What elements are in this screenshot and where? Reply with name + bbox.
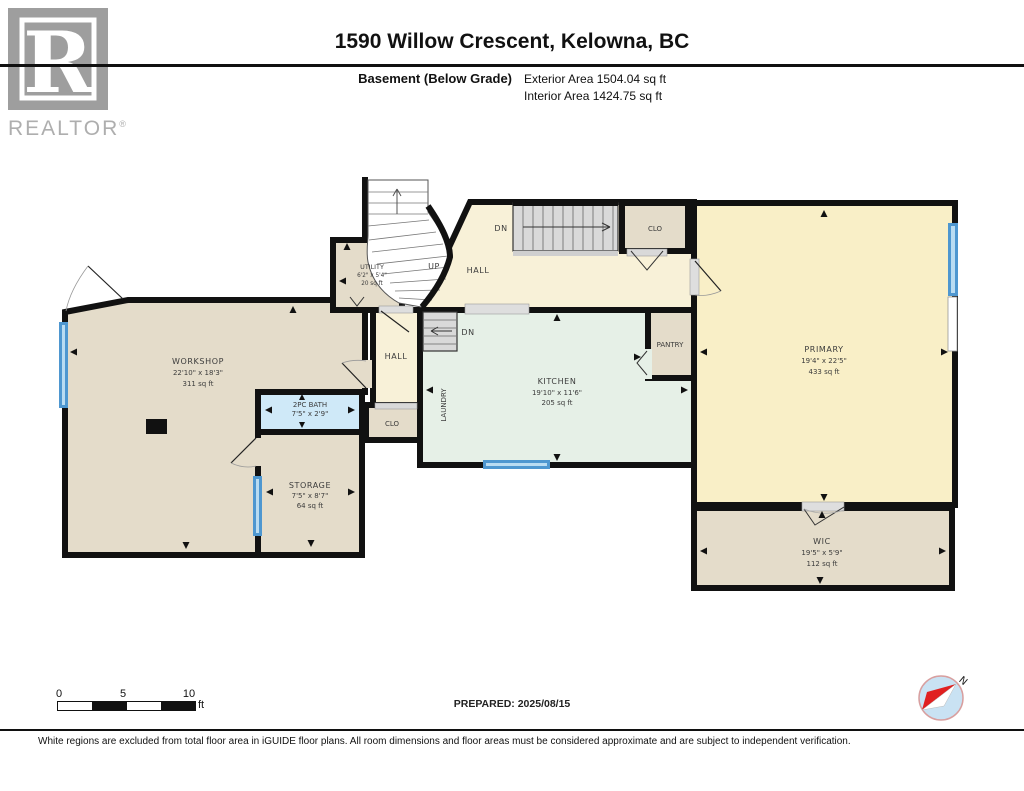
window-glass [256,479,259,533]
footer-divider [0,729,1024,731]
pantry-name: PANTRY [657,341,684,349]
clo-lower-name: CLO [385,420,400,428]
utility-dims: 6'2" x 5'4" [357,273,387,279]
opening-wic-door [802,502,844,511]
wall-white-segment [948,297,957,351]
window-glass [486,463,547,466]
door-leaf-workshop-entry [88,266,123,299]
laundry-name: LAUNDRY [440,388,448,422]
primary-dims: 19'4" x 22'5" [801,357,847,365]
kitchen-name: KITCHEN [538,377,577,386]
dn-upper-label: DN [494,224,507,233]
floor-plan: WORKSHOP 22'10" x 18'3" 311 sq ft 2PC BA… [0,0,1024,791]
up-label: UP [428,262,440,271]
stairs-down-upper [513,203,618,256]
opening-hall-lower-top [379,306,413,313]
clo-upper-name: CLO [648,225,663,233]
window-glass [951,226,955,293]
kitchen-area: 205 sq ft [542,399,573,407]
opening-storage-door [254,438,263,466]
utility-name: UTILITY [360,263,384,271]
hall-lower-name: HALL [385,352,408,361]
prepared-date: PREPARED: 2025/08/15 [0,698,1024,710]
wic-area: 112 sq ft [807,560,838,568]
utility-area: 20 sq ft [361,281,383,287]
hall-upper-name: HALL [467,266,490,275]
support-post [146,419,167,434]
primary-area: 433 sq ft [809,368,840,376]
workshop-name: WORKSHOP [172,357,224,366]
bath-dims: 7'5" x 2'9" [292,410,329,418]
window-glass [62,325,65,405]
wic-dims: 19'5" x 5'9" [801,549,842,557]
wic-name: WIC [813,537,831,546]
primary-name: PRIMARY [804,345,843,354]
door-arc [66,266,88,311]
dn-lower-label: DN [461,328,474,337]
storage-area: 64 sq ft [297,502,324,510]
stairs-down-lower [423,312,457,351]
workshop-dims: 22'10" x 18'3" [173,369,223,377]
room-primary [694,203,955,505]
bath-name: 2PC BATH [293,401,327,409]
kitchen-dims: 19'10" x 11'6" [532,389,582,397]
workshop-area: 311 sq ft [183,380,214,388]
disclaimer-text: White regions are excluded from total fl… [38,736,998,747]
opening-clo-upper [627,249,667,256]
storage-dims: 7'5" x 8'7" [292,492,329,500]
opening-clo-lower [375,403,417,409]
stairs-down-upper-landing [513,251,618,256]
opening-hall-kitchen [465,304,529,314]
storage-name: STORAGE [289,481,331,490]
